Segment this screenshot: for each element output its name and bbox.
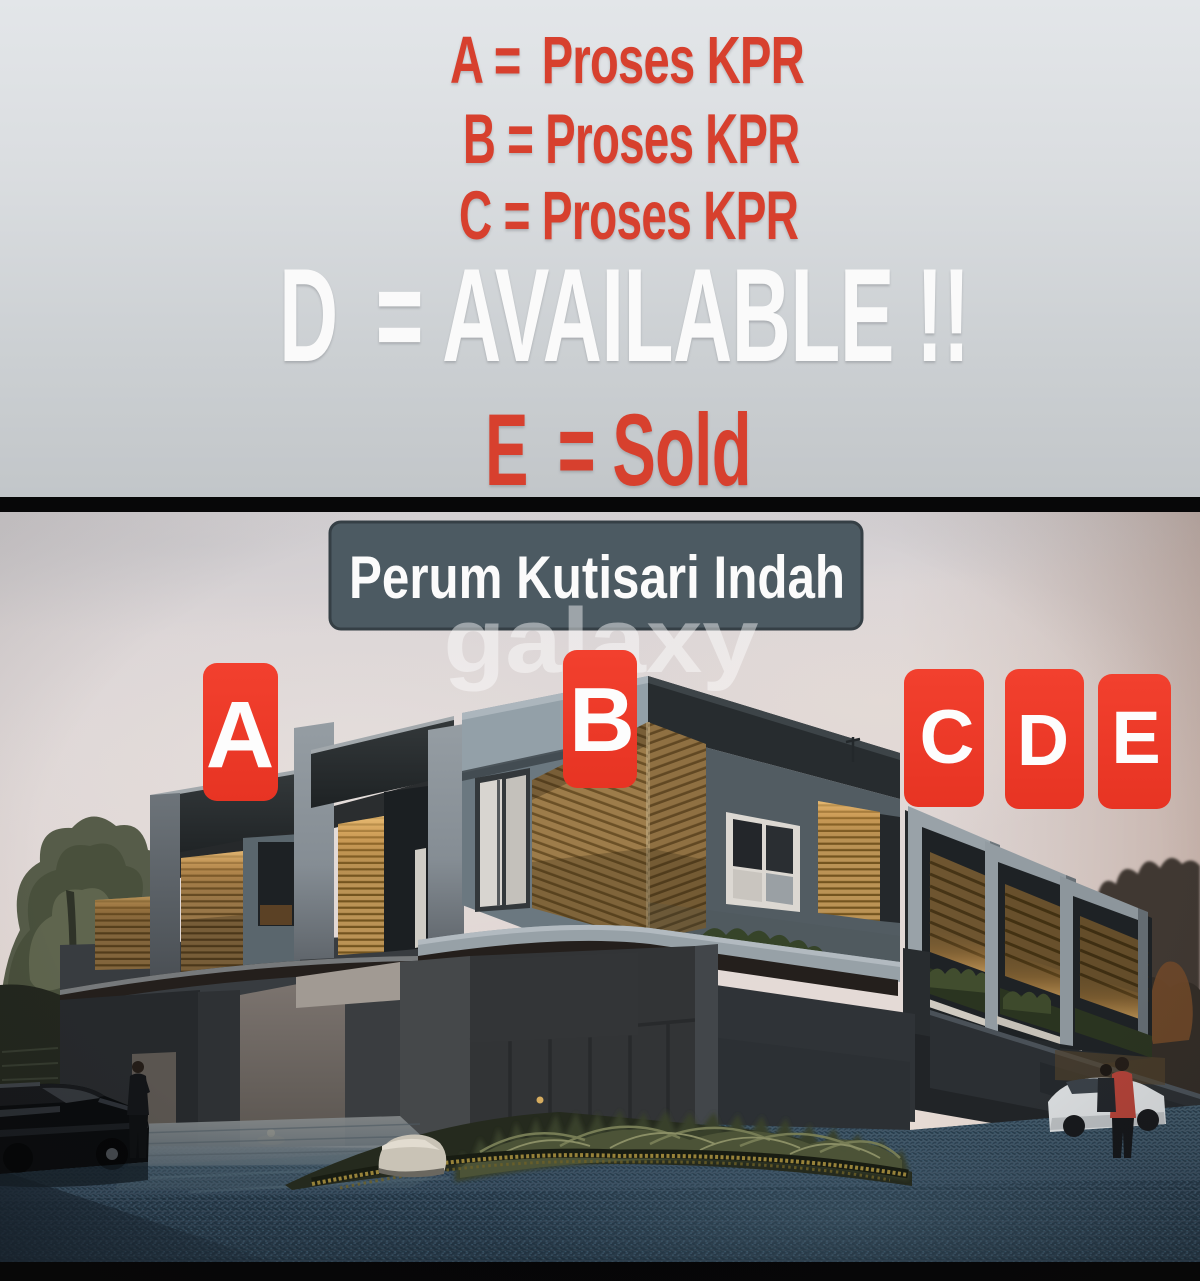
svg-text:A: A	[206, 682, 275, 788]
svg-text:C: C	[920, 695, 975, 780]
svg-text:D: D	[1017, 701, 1069, 781]
svg-text:B: B	[569, 670, 635, 771]
svg-text:E: E	[1111, 696, 1160, 779]
